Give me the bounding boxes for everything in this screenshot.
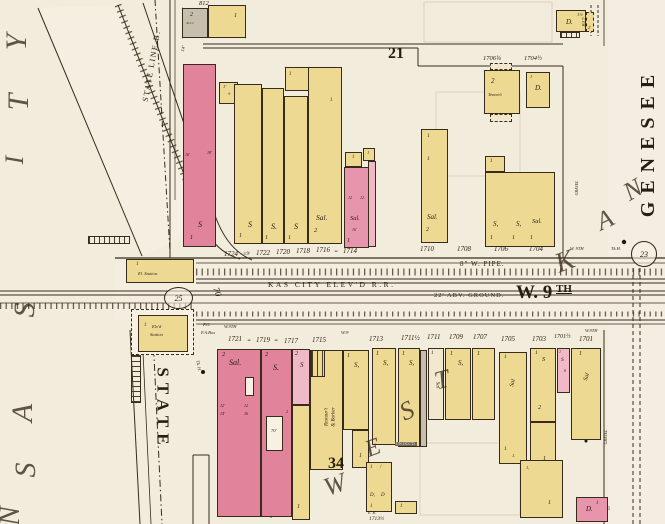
building-label: 14' (220, 412, 225, 416)
street-number: ≡ (247, 338, 251, 344)
circled-number-25: 25 (164, 287, 193, 309)
building-label: 1 (265, 235, 268, 241)
building-label: 1 (136, 262, 139, 267)
building-label: Restaur't (325, 408, 330, 426)
building-label: 2 (314, 228, 317, 235)
building-label: S (198, 221, 202, 229)
store-building: S1 (284, 96, 308, 244)
building-label: Sal (583, 372, 591, 381)
store-building: S1 (234, 84, 262, 244)
building-label: 1 (504, 447, 507, 453)
building-label: 1 (370, 504, 373, 509)
porch (560, 32, 580, 38)
giant-letter: S (10, 303, 40, 318)
saloon-building: 1Sal11. (499, 352, 527, 464)
store-building: 1S, (343, 350, 369, 430)
building-label: 1 (234, 13, 237, 19)
street-number: 1720 (276, 249, 290, 256)
building-label: D. (535, 85, 542, 92)
street-number: ≡9ᵗ (243, 252, 250, 257)
street-number: 1711 (427, 334, 440, 341)
building-label: 1, (526, 466, 529, 471)
building-label: 1 (504, 355, 507, 361)
crosswalk (88, 236, 130, 244)
paving-label: GRAVEL (604, 430, 608, 445)
street-number: 1724 (224, 251, 238, 258)
building-label: 1 (347, 238, 350, 244)
building-label: 2 (265, 352, 268, 359)
building-label: S. (271, 223, 277, 231)
building-label: D, (370, 493, 375, 498)
building-label: Sal. (229, 359, 241, 367)
paving-label: GRAVEL (575, 181, 579, 196)
building-label: 1 (530, 75, 532, 80)
street-number: 1715 (312, 337, 326, 344)
store-row: S,1S,1Sal.1 (485, 172, 555, 247)
building-label: 2 (295, 351, 298, 357)
building-label: 1 (548, 500, 551, 506)
saloon-building: 1Sal.2 (308, 67, 342, 244)
building-label: 1 (330, 98, 333, 103)
building-label: Elv'd (152, 325, 161, 330)
street-annotation: W. 9TH (570, 247, 584, 252)
iron-clad-building: 2Jn.Cl (182, 8, 208, 38)
street-name-state-line: STATE LINE B. (142, 30, 162, 103)
street-number: 1718 (296, 248, 310, 255)
building-label: 12' (220, 404, 225, 408)
building-label: S, (354, 362, 359, 369)
porch (490, 63, 512, 70)
giant-letter: I (2, 156, 28, 165)
street-number: 1703 (532, 336, 546, 343)
building-label: 2 (426, 227, 429, 233)
street-number: 1704½ (524, 56, 542, 63)
building-label: 12. (360, 196, 365, 200)
street-number: 1701 (579, 336, 593, 343)
building-label: 12 (244, 404, 248, 408)
building-label: 1 (477, 351, 480, 357)
saloon-building: 11Sal.2 (421, 129, 448, 243)
building-label: 1 (535, 351, 538, 357)
street-number: ≡ (274, 338, 278, 344)
building-label: S (294, 223, 298, 231)
building-label: 1 (512, 235, 515, 241)
building-label: 2' (588, 26, 591, 30)
street-number: 1713 (369, 336, 383, 343)
building-label: 1 (490, 159, 493, 164)
street-number: 1706 (494, 246, 508, 253)
street-number: 1709 (449, 334, 463, 341)
building-label: 1 (370, 465, 373, 470)
building-label: 6 (564, 369, 566, 373)
street-number: 1708 (457, 246, 471, 253)
dwelling: D.1 (576, 497, 608, 522)
building-label: 1 (490, 235, 493, 241)
building-label: S, (493, 221, 498, 228)
building-label: Station (150, 333, 163, 338)
building-label: 18' (207, 151, 212, 155)
dimension-label: 10' (607, 506, 611, 511)
building-label: 1 (400, 504, 403, 509)
street-number: 1721 (228, 336, 242, 343)
shed: 1 (395, 501, 417, 514)
building-label: S, (409, 360, 414, 367)
building: 1 (208, 5, 246, 38)
elevated-station: 1El. Station. (126, 259, 194, 283)
building-label: 2 (538, 405, 541, 411)
building-label: Sal (509, 379, 517, 388)
building-label: 1 (297, 504, 300, 510)
building-label: 1 (579, 351, 582, 357)
giant-letter: A (592, 205, 617, 235)
saloon-building: 1Sal (571, 348, 601, 440)
building-label: 1 (427, 134, 430, 140)
building-label: 1 (367, 151, 369, 156)
tenement: 2Tenem't (484, 70, 520, 114)
building-label: 70' (271, 429, 276, 434)
street-number: 812 (199, 1, 209, 8)
building-label: S (248, 221, 252, 229)
building: 1 (363, 148, 375, 161)
building-label: S, (458, 360, 463, 367)
street-number: 1713½ (369, 517, 384, 523)
store-building: 1S, (372, 348, 396, 445)
building-label: 1 (450, 351, 453, 357)
building-label: S (542, 357, 545, 364)
giant-letter: Y (2, 34, 32, 51)
building-label: 1 (359, 453, 362, 459)
awning (311, 350, 325, 377)
store-building: S.1 (262, 88, 284, 244)
building-label: D (381, 493, 385, 498)
building-label: S (300, 362, 304, 369)
street-number: 1706¾ (483, 56, 501, 63)
building-label: Sal. (316, 214, 327, 222)
building-label: 1 (239, 233, 242, 239)
building-label: & Barber (332, 407, 337, 426)
building-label: 1 (402, 351, 405, 357)
dwelling-pair: 1/D,D1 (366, 462, 392, 512)
building-label: 1 (144, 323, 147, 328)
giant-letter: N (0, 506, 25, 524)
building-label: Sal. (427, 214, 438, 221)
building-label: 1 (190, 235, 193, 241)
street-number: 1707 (473, 334, 487, 341)
street-annotation: W.9TH (224, 325, 236, 330)
unoccupied-label: UN.OCC'D. (395, 442, 417, 446)
building: 1 (345, 152, 362, 167)
building-label: 1 (427, 157, 430, 163)
street-number: 1711½ (401, 335, 420, 342)
building-label: 12 (348, 196, 352, 200)
circled-number-23: 23 (631, 241, 657, 267)
street-number: 1701½ (554, 334, 571, 340)
tank-house-label: Tk.H. (611, 247, 621, 252)
fire-alarm-box-label: F.A.Box (201, 331, 215, 336)
building-label: Jn.Cl (186, 22, 194, 26)
building-label: 1 (352, 155, 355, 160)
building-label: Sal. (350, 216, 360, 223)
building-label: 2 (222, 352, 225, 359)
street-number: 1714 (343, 248, 357, 255)
dimension-label: 14' (181, 45, 187, 52)
building-label: Tenem't (488, 93, 502, 98)
building-label: 1' (223, 85, 226, 90)
giant-letter: W (320, 469, 349, 501)
store-building: 1 (472, 348, 495, 420)
street-name-state: STATE (155, 367, 172, 450)
building-label: S. (273, 364, 279, 372)
railroad-height-note: 22' ABV. GROUND. (434, 293, 505, 300)
building-label: S, (383, 360, 388, 367)
building-label: 2 (491, 78, 495, 85)
building: 1 (485, 156, 505, 172)
building-label: 1 (376, 351, 379, 357)
rear-building: 1 (292, 405, 310, 520)
station-stairs (131, 355, 141, 403)
x-roofed-shed: 1 (285, 67, 310, 91)
rear-building: 1,1 (520, 460, 563, 518)
sanborn-map-canvas[interactable]: 2Jn.Cl1D.1½2'16'18'S11'+S1S.1S111Sal.211… (0, 0, 665, 524)
street-number: 1719 (256, 337, 270, 344)
street-number: 1705 (501, 336, 515, 343)
tank-house-label: Tk. H. (195, 360, 201, 372)
building-label: S (561, 358, 564, 364)
street-name-w-9th: W. 9 (516, 283, 552, 302)
iron-clad-strip (420, 350, 427, 447)
giant-letter: S (11, 463, 41, 478)
annotation-label: E. B. (368, 511, 376, 515)
light-well (245, 377, 254, 396)
store-building: 16'18'S1 (183, 64, 216, 247)
store-building: 1S2 (530, 348, 556, 422)
building-label: 1 (431, 351, 434, 356)
railroad-label: KAS CITY ELEV'D R.R. (268, 281, 396, 289)
store-building: 1S6 (557, 348, 570, 393)
street-number: 1722 (256, 250, 270, 257)
dwelling: 1D. (526, 72, 550, 108)
street-number: 1716 (316, 247, 330, 254)
street-name-w-9th-suffix: TH (556, 284, 572, 295)
building-label: + (227, 92, 231, 98)
street-annotation: W.9TH (585, 329, 597, 334)
street-annotation: W.9ᵗ (341, 331, 348, 336)
street-number: 1717 (284, 338, 298, 345)
building-label: / (380, 465, 381, 470)
water-pipe-label: 8" W. PIPE. (460, 261, 505, 268)
building-label: Sal. (532, 219, 542, 226)
giant-letter: A (8, 404, 38, 422)
street-number: 812 (582, 18, 588, 27)
building-label: 16 (244, 412, 248, 416)
building-label: 1 (559, 350, 561, 354)
building-label: S, (516, 221, 521, 228)
building-label: 2 (286, 410, 288, 414)
building-label: 1 (289, 72, 292, 77)
building-label: D. (566, 19, 573, 26)
porch-strip (368, 161, 376, 247)
building-label: 2 (190, 12, 193, 18)
building-label: 16' (185, 153, 190, 157)
elevated-station: 1Elv'dStation (138, 315, 188, 352)
building-label: El. Station. (138, 272, 158, 277)
building-label: 1. (512, 454, 515, 459)
building-label: 1 (347, 353, 350, 359)
interior-structure: 70' (266, 416, 283, 451)
porch (490, 114, 512, 122)
block-number-21: 21 (388, 46, 404, 62)
store-building: 2S (292, 349, 310, 405)
saloon-building: 2Sal.12'14'1216 (217, 349, 261, 517)
building-label: 16' (352, 228, 357, 232)
building-label: D. (586, 506, 593, 513)
street-number: 1710 (420, 246, 434, 253)
street-width-label: 70 (211, 286, 223, 298)
street-number: ≡ (334, 249, 338, 255)
building-label: 1 (596, 501, 599, 506)
post-office-label: P.O. (203, 323, 211, 328)
building-label: 1 (288, 235, 291, 241)
giant-letter: T (4, 94, 34, 111)
saloon-building: 1212.Sal.16'1 (344, 167, 369, 248)
street-number: 1704 (529, 246, 543, 253)
building-label: 1 (530, 235, 533, 241)
